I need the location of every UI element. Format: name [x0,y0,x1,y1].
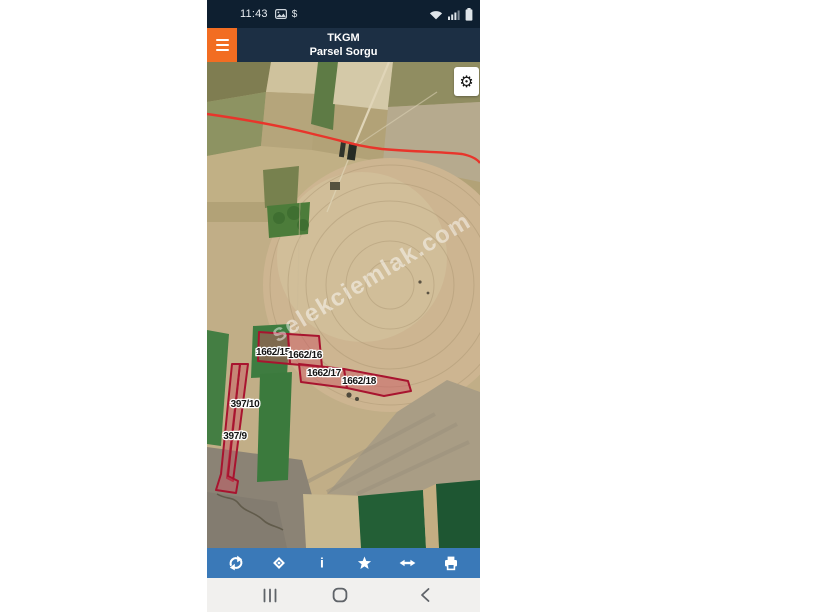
hamburger-icon [216,39,229,41]
wifi-icon [429,9,443,20]
parcel-label: 397/10 [231,399,261,410]
battery-icon [465,8,473,21]
favorite-button[interactable] [352,551,378,575]
dollar-icon: $ [292,9,298,20]
parcel-label: 1662/15 [256,347,291,358]
screenshot-icon [275,9,287,19]
bottom-toolbar: i [207,548,480,578]
info-icon: i [314,555,330,571]
refresh-icon [228,555,244,571]
signal-icon [448,9,460,20]
left-right-arrow-icon [399,555,416,571]
parcel-label: 1662/16 [288,350,323,361]
status-right-icons [429,8,473,21]
parcel-label: 1662/17 [307,368,342,379]
locate-button[interactable] [266,551,292,575]
app-header: TKGM Parsel Sorgu [207,28,480,62]
status-bar: 11:43 $ [207,0,480,28]
svg-text:i: i [320,555,324,571]
header-title: TKGM Parsel Sorgu [310,31,378,60]
android-nav-bar [207,578,480,612]
hamburger-menu-button[interactable] [207,28,237,62]
parcel-label: 397/9 [223,431,247,442]
back-chevron-icon [419,587,431,603]
phone-screen: 11:43 $ [207,0,480,612]
print-button[interactable] [438,551,464,575]
app-subtitle: Parsel Sorgu [310,45,378,59]
home-button[interactable] [330,585,350,605]
locate-icon [271,555,287,571]
home-icon [332,587,348,603]
map-settings-button[interactable]: ⚙ [454,67,479,96]
refresh-button[interactable] [223,551,249,575]
satellite-map[interactable]: 1662/15 1662/16 1662/17 1662/18 397/10 3… [207,62,480,548]
info-button[interactable]: i [309,551,335,575]
gear-icon: ⚙ [459,72,473,91]
printer-icon [443,555,459,571]
status-left-icons: $ [275,9,298,20]
recents-button[interactable] [260,585,280,605]
recents-icon [262,588,278,603]
star-icon [356,555,373,571]
app-title: TKGM [310,31,378,45]
back-button[interactable] [415,585,435,605]
parcel-label: 1662/18 [342,376,377,387]
clock-text: 11:43 [240,8,268,20]
screenshot-canvas: 11:43 $ [0,0,816,612]
map-view[interactable]: 1662/15 1662/16 1662/17 1662/18 397/10 3… [207,62,480,548]
measure-button[interactable] [395,551,421,575]
